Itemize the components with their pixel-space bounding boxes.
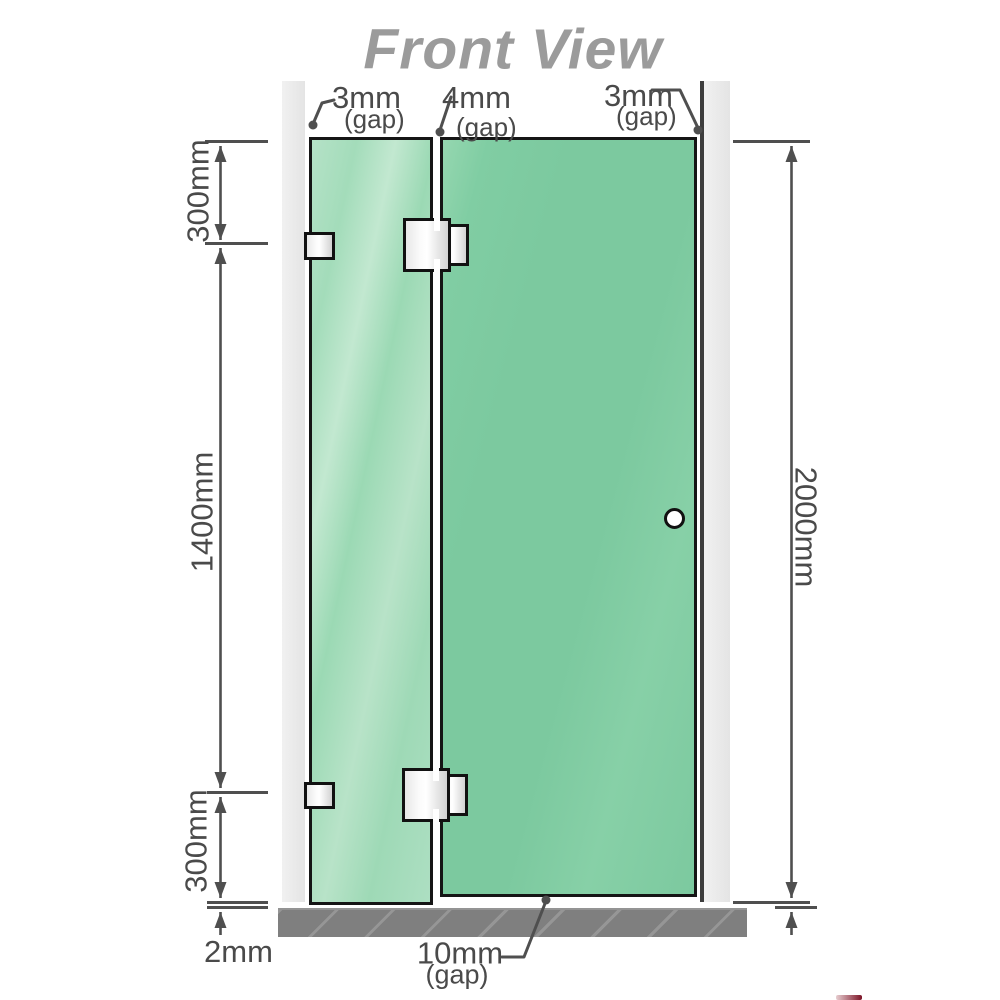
corner-logo-fragment [836,995,862,1000]
left-wall-channel [282,81,305,902]
dimension-left-middle: 1400mm [187,452,218,573]
dimension-left-top: 300mm [183,139,214,242]
dimension-left-bottom: 300mm [181,789,212,892]
shower-screen-front-view-diagram: Front View [0,0,1000,1000]
right-wall-channel [704,81,730,902]
hinge-left-plate [402,768,450,822]
label-bottom-gap-unit: (gap) [425,962,488,989]
dimension-right-full: 2000mm [791,467,822,588]
diagram-title: Front View [363,22,662,79]
bottom-wall-bracket [304,782,335,809]
hinge-left-plate [403,218,451,272]
top-center-hinge [403,218,469,272]
bottom-center-hinge [402,768,468,822]
hinge-gap-slot-top [434,218,440,231]
label-top-right-gap-unit: (gap) [616,103,677,129]
floor-base [278,908,747,937]
label-top-middle-gap-value: 4mm [442,82,511,113]
hinge-gap-slot-top [433,768,439,781]
hinge-gap-slot-bottom [433,809,439,822]
top-wall-bracket [304,232,335,260]
door-handle-knob [664,508,685,529]
hinge-gap-slot-bottom [434,259,440,272]
label-top-left-gap-unit: (gap) [344,106,405,132]
glass-door-panel [440,137,697,897]
label-floor-gap-left: 2mm [204,936,273,967]
label-top-middle-gap-unit: (gap) [456,114,517,140]
